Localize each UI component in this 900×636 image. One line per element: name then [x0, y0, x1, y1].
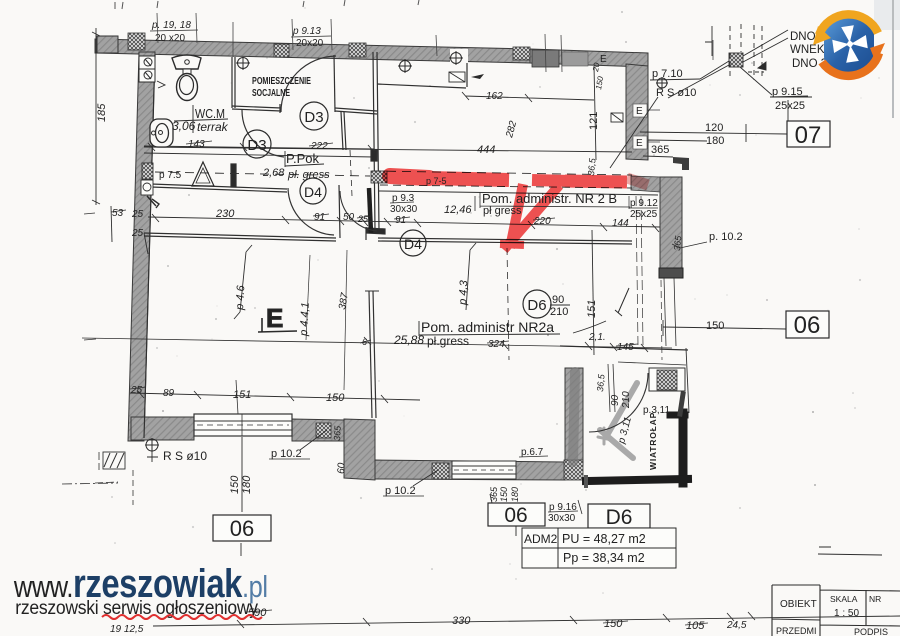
svg-text:143: 143 — [188, 139, 205, 150]
svg-text:180: 180 — [706, 135, 724, 147]
svg-text:185: 185 — [96, 103, 108, 122]
svg-text:D4: D4 — [404, 236, 422, 252]
svg-text:60: 60 — [336, 462, 348, 474]
svg-text:24,5: 24,5 — [726, 620, 747, 631]
svg-text:20x20: 20x20 — [296, 38, 324, 49]
svg-text:NR: NR — [869, 594, 881, 604]
svg-text:p 4.4,1: p 4.4,1 — [298, 302, 312, 337]
svg-text:121: 121 — [588, 112, 600, 130]
svg-text:150: 150 — [229, 475, 241, 494]
svg-text:180: 180 — [510, 487, 520, 502]
svg-text:p 9.12: p 9.12 — [630, 198, 658, 209]
svg-text:90: 90 — [610, 394, 621, 406]
svg-text:25: 25 — [130, 385, 143, 396]
svg-text:Pom. administr. NR 2 B: Pom. administr. NR 2 B — [482, 191, 617, 206]
svg-text:330: 330 — [452, 615, 471, 627]
svg-text:SOCJALNE: SOCJALNE — [252, 88, 290, 99]
svg-text:19 12,5: 19 12,5 — [110, 624, 144, 635]
svg-text:06: 06 — [504, 504, 527, 527]
svg-text:p 7-5: p 7-5 — [426, 176, 447, 186]
svg-text:D3: D3 — [304, 109, 323, 126]
svg-text:R S ø10: R S ø10 — [163, 449, 207, 463]
svg-text:p 10.2: p 10.2 — [385, 485, 416, 497]
svg-text:12,46: 12,46 — [444, 204, 472, 216]
svg-text:PRZEDMI: PRZEDMI — [776, 626, 817, 636]
svg-text:p 4.6: p 4.6 — [234, 284, 247, 311]
svg-text:365: 365 — [489, 486, 499, 502]
svg-text:P.Pok: P.Pok — [286, 151, 320, 166]
svg-text:144: 144 — [612, 218, 629, 229]
svg-text:180: 180 — [241, 475, 253, 494]
svg-text:R S ø10: R S ø10 — [656, 87, 696, 99]
svg-text:WIATROŁAP: WIATROŁAP — [648, 412, 658, 470]
svg-text:220: 220 — [533, 216, 551, 227]
svg-text:210: 210 — [550, 306, 568, 318]
svg-text:91: 91 — [395, 215, 406, 226]
svg-text:36,5: 36,5 — [586, 157, 598, 176]
svg-text:365: 365 — [672, 234, 683, 251]
svg-text:06: 06 — [230, 516, 254, 541]
svg-text:145: 145 — [617, 342, 634, 353]
svg-text:91: 91 — [314, 212, 325, 223]
svg-text:OBIEKT: OBIEKT — [780, 599, 817, 610]
svg-text:324: 324 — [488, 339, 505, 350]
svg-text:terrak: terrak — [197, 120, 229, 134]
svg-text:105: 105 — [686, 620, 705, 632]
svg-text:06: 06 — [794, 312, 821, 339]
svg-text:pł gress: pł gress — [483, 205, 522, 217]
svg-text:444: 444 — [477, 144, 495, 156]
svg-text:230: 230 — [215, 208, 235, 220]
svg-text:p 9.13: p 9.13 — [292, 26, 321, 37]
svg-text:POMIESZCZENIE: POMIESZCZENIE — [252, 76, 311, 87]
svg-text:25: 25 — [131, 209, 144, 220]
svg-text:D4: D4 — [304, 184, 322, 200]
svg-text:PODPIS: PODPIS — [854, 627, 888, 636]
svg-text:pł. gress: pł. gress — [287, 169, 330, 181]
svg-text:ADM2: ADM2 — [524, 532, 558, 546]
svg-text:25: 25 — [131, 228, 144, 239]
svg-text:E: E — [636, 138, 643, 149]
svg-text:p 10.2: p 10.2 — [271, 448, 302, 460]
svg-text:07: 07 — [795, 122, 822, 149]
svg-text:365: 365 — [651, 144, 669, 156]
svg-text:D6: D6 — [606, 506, 633, 529]
svg-text:D3: D3 — [247, 137, 266, 154]
svg-text:D6: D6 — [527, 297, 546, 314]
svg-text:30x30: 30x30 — [548, 513, 576, 524]
svg-text:222: 222 — [310, 141, 328, 152]
svg-text:p.3,11: p.3,11 — [643, 405, 670, 416]
svg-text:25x25: 25x25 — [775, 100, 805, 112]
svg-text:SKALA: SKALA — [830, 594, 858, 604]
svg-text:p 7.10: p 7.10 — [652, 68, 683, 80]
svg-text:150: 150 — [326, 392, 345, 404]
svg-text:150: 150 — [604, 618, 623, 630]
svg-text:89: 89 — [163, 388, 175, 399]
svg-text:25: 25 — [357, 214, 369, 224]
svg-text:90: 90 — [552, 294, 564, 306]
svg-text:150: 150 — [706, 320, 724, 332]
svg-text:E: E — [636, 106, 643, 117]
svg-text:WC.M: WC.M — [195, 106, 225, 121]
svg-text:E: E — [266, 303, 283, 333]
svg-text:151: 151 — [586, 300, 598, 318]
svg-text:210: 210 — [621, 391, 632, 409]
svg-text:25x25: 25x25 — [630, 209, 658, 220]
svg-text:p 4,3: p 4,3 — [457, 279, 470, 306]
svg-text:53: 53 — [112, 208, 124, 219]
svg-text:120: 120 — [705, 122, 723, 134]
svg-text:30x30: 30x30 — [390, 204, 418, 215]
svg-text:1 : 50: 1 : 50 — [834, 608, 859, 619]
svg-text:36,5: 36,5 — [595, 373, 607, 392]
svg-text:2,1.: 2,1. — [588, 332, 606, 343]
svg-text:Pom. administr NR2a: Pom. administr NR2a — [421, 319, 554, 335]
svg-text:E: E — [600, 54, 607, 65]
svg-text:50: 50 — [343, 212, 355, 223]
svg-text:p. 10.2: p. 10.2 — [709, 231, 743, 243]
svg-text:Pp = 38,34 m2: Pp = 38,34 m2 — [563, 551, 645, 565]
svg-text:p 9.15: p 9.15 — [772, 86, 803, 98]
svg-text:p 7.5: p 7.5 — [159, 170, 182, 181]
svg-text:pł.gress: pł.gress — [427, 334, 469, 348]
svg-text:PU = 48,27 m2: PU = 48,27 m2 — [562, 532, 646, 546]
svg-text:365: 365 — [332, 425, 343, 442]
svg-text:150: 150 — [499, 487, 509, 502]
svg-text:151: 151 — [233, 389, 251, 401]
svg-text:2,68: 2,68 — [262, 167, 285, 179]
svg-text:20 x20: 20 x20 — [155, 33, 185, 44]
svg-text:162: 162 — [486, 91, 503, 102]
